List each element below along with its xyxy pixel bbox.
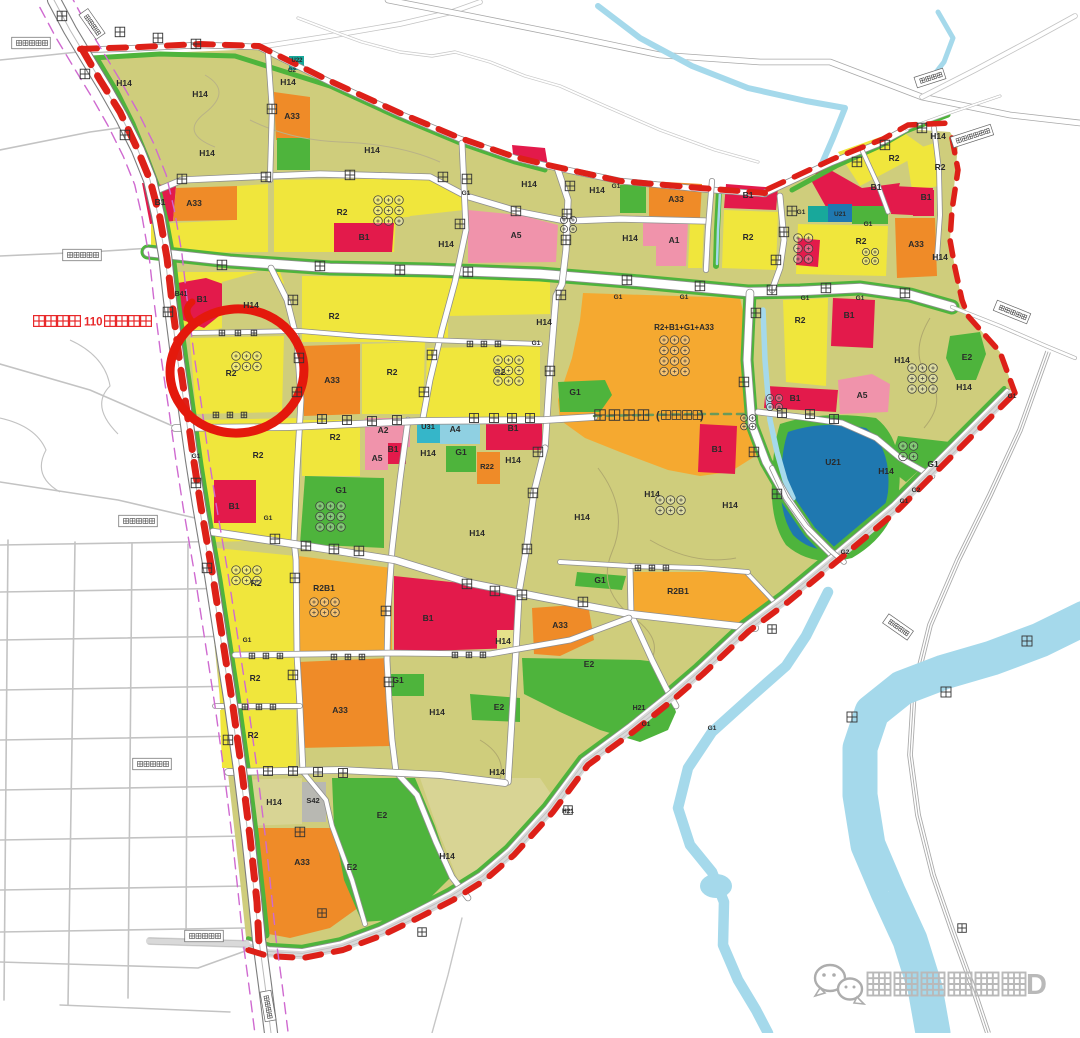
svg-text:B1: B1: [790, 393, 801, 403]
svg-text:R2: R2: [330, 432, 341, 442]
svg-text:H14: H14: [930, 131, 946, 141]
svg-text:G1: G1: [594, 575, 606, 585]
svg-text:R2B1: R2B1: [313, 583, 335, 593]
svg-text:A33: A33: [332, 705, 348, 715]
svg-text:U21: U21: [825, 457, 841, 467]
svg-text:S42: S42: [306, 796, 319, 805]
svg-text:R2: R2: [337, 207, 348, 217]
svg-text:R2: R2: [387, 367, 398, 377]
svg-text:H14: H14: [956, 382, 972, 392]
svg-text:G1: G1: [243, 637, 252, 644]
svg-text:G1: G1: [642, 721, 651, 728]
svg-text:G1: G1: [612, 183, 621, 190]
svg-text:R2: R2: [795, 315, 806, 325]
svg-text:B1: B1: [508, 423, 519, 433]
svg-text:H14: H14: [536, 317, 552, 327]
svg-text:H14: H14: [574, 512, 590, 522]
svg-text:H14: H14: [364, 145, 380, 155]
svg-text:H14: H14: [505, 455, 521, 465]
svg-text:B1: B1: [359, 232, 370, 242]
svg-text:E2: E2: [494, 702, 505, 712]
svg-text:H14: H14: [878, 466, 894, 476]
svg-text:G1: G1: [856, 295, 865, 302]
svg-text:H14: H14: [894, 355, 910, 365]
svg-text:B1: B1: [229, 501, 240, 511]
svg-text:G1: G1: [797, 209, 806, 216]
svg-text:R2: R2: [248, 730, 259, 740]
svg-text:H14: H14: [521, 179, 537, 189]
svg-text:G1: G1: [192, 453, 201, 460]
svg-text:E2: E2: [347, 862, 358, 872]
svg-text:G2: G2: [841, 549, 850, 556]
svg-text:G1: G1: [1008, 393, 1017, 400]
svg-text:H21: H21: [633, 705, 646, 712]
svg-text:R2+B1+G1+A33: R2+B1+G1+A33: [654, 323, 714, 332]
svg-text:U21: U21: [834, 211, 846, 218]
svg-text:B1: B1: [871, 182, 882, 192]
svg-text:G2: G2: [288, 68, 297, 74]
svg-text:H14: H14: [622, 233, 638, 243]
svg-text:H14: H14: [116, 78, 132, 88]
svg-text:B41: B41: [175, 291, 188, 298]
svg-text:A5: A5: [372, 453, 383, 463]
svg-text:H14: H14: [495, 636, 511, 646]
svg-text:R22: R22: [480, 462, 494, 471]
svg-text:G1: G1: [462, 190, 471, 197]
svg-text:H14: H14: [438, 239, 454, 249]
svg-text:G1: G1: [335, 485, 347, 495]
svg-text:B1: B1: [712, 444, 723, 454]
svg-text:H14: H14: [722, 500, 738, 510]
svg-text:A2: A2: [378, 425, 389, 435]
svg-text:R2: R2: [253, 450, 264, 460]
svg-text:G1: G1: [455, 447, 467, 457]
svg-text:H14: H14: [266, 797, 282, 807]
svg-text:R2: R2: [856, 236, 867, 246]
svg-text:G1: G1: [927, 459, 939, 469]
svg-text:H14: H14: [199, 148, 215, 158]
svg-text:R2: R2: [250, 673, 261, 683]
svg-text:H14: H14: [589, 185, 605, 195]
svg-text:G1: G1: [900, 498, 909, 505]
svg-text:B1: B1: [423, 613, 434, 623]
svg-text:G1: G1: [680, 294, 689, 301]
svg-text:G1: G1: [708, 725, 717, 732]
svg-text:G1: G1: [532, 340, 541, 347]
svg-text:G1: G1: [264, 515, 273, 522]
svg-text:D: D: [1026, 969, 1047, 1001]
svg-text:G1: G1: [864, 221, 873, 228]
svg-text:H14: H14: [243, 300, 259, 310]
svg-text:A33: A33: [324, 375, 340, 385]
svg-text:H14: H14: [280, 77, 296, 87]
svg-text:B1: B1: [921, 192, 932, 202]
svg-text:R2: R2: [889, 153, 900, 163]
svg-text:H14: H14: [429, 707, 445, 717]
svg-text:A5: A5: [857, 390, 868, 400]
svg-text:A4: A4: [450, 424, 461, 434]
svg-text:E2: E2: [584, 659, 595, 669]
svg-text:A33: A33: [294, 857, 310, 867]
svg-text:G2: G2: [912, 487, 921, 494]
svg-text:A1: A1: [669, 235, 680, 245]
svg-text:R2: R2: [743, 232, 754, 242]
svg-text:A5: A5: [511, 230, 522, 240]
svg-text:H14: H14: [420, 448, 436, 458]
svg-text:(: (: [656, 410, 660, 422]
svg-text:R2B1: R2B1: [667, 586, 689, 596]
svg-text:110: 110: [84, 317, 103, 329]
svg-text:G1: G1: [801, 295, 810, 302]
svg-text:A33: A33: [186, 198, 202, 208]
svg-text:A33: A33: [552, 620, 568, 630]
svg-text:): ): [700, 410, 704, 422]
svg-text:G1: G1: [569, 387, 581, 397]
svg-text:B1: B1: [844, 310, 855, 320]
svg-text:B1: B1: [197, 294, 208, 304]
svg-text:H14: H14: [932, 252, 948, 262]
svg-text:U22: U22: [291, 58, 303, 64]
svg-text:A33: A33: [908, 239, 924, 249]
svg-text:G1: G1: [614, 294, 623, 301]
svg-text:E2: E2: [962, 352, 973, 362]
svg-text:H14: H14: [439, 851, 455, 861]
svg-text:B1: B1: [155, 197, 166, 207]
svg-text:E2: E2: [377, 810, 388, 820]
svg-text:H14: H14: [469, 528, 485, 538]
svg-text:R2: R2: [329, 311, 340, 321]
svg-text:H14: H14: [192, 89, 208, 99]
svg-text:A33: A33: [668, 194, 684, 204]
svg-text:H14: H14: [489, 767, 505, 777]
svg-text:U31: U31: [421, 422, 435, 431]
svg-text:B1: B1: [743, 190, 754, 200]
svg-text:B1: B1: [388, 444, 399, 454]
svg-text:R2: R2: [935, 162, 946, 172]
svg-text:A33: A33: [284, 111, 300, 121]
